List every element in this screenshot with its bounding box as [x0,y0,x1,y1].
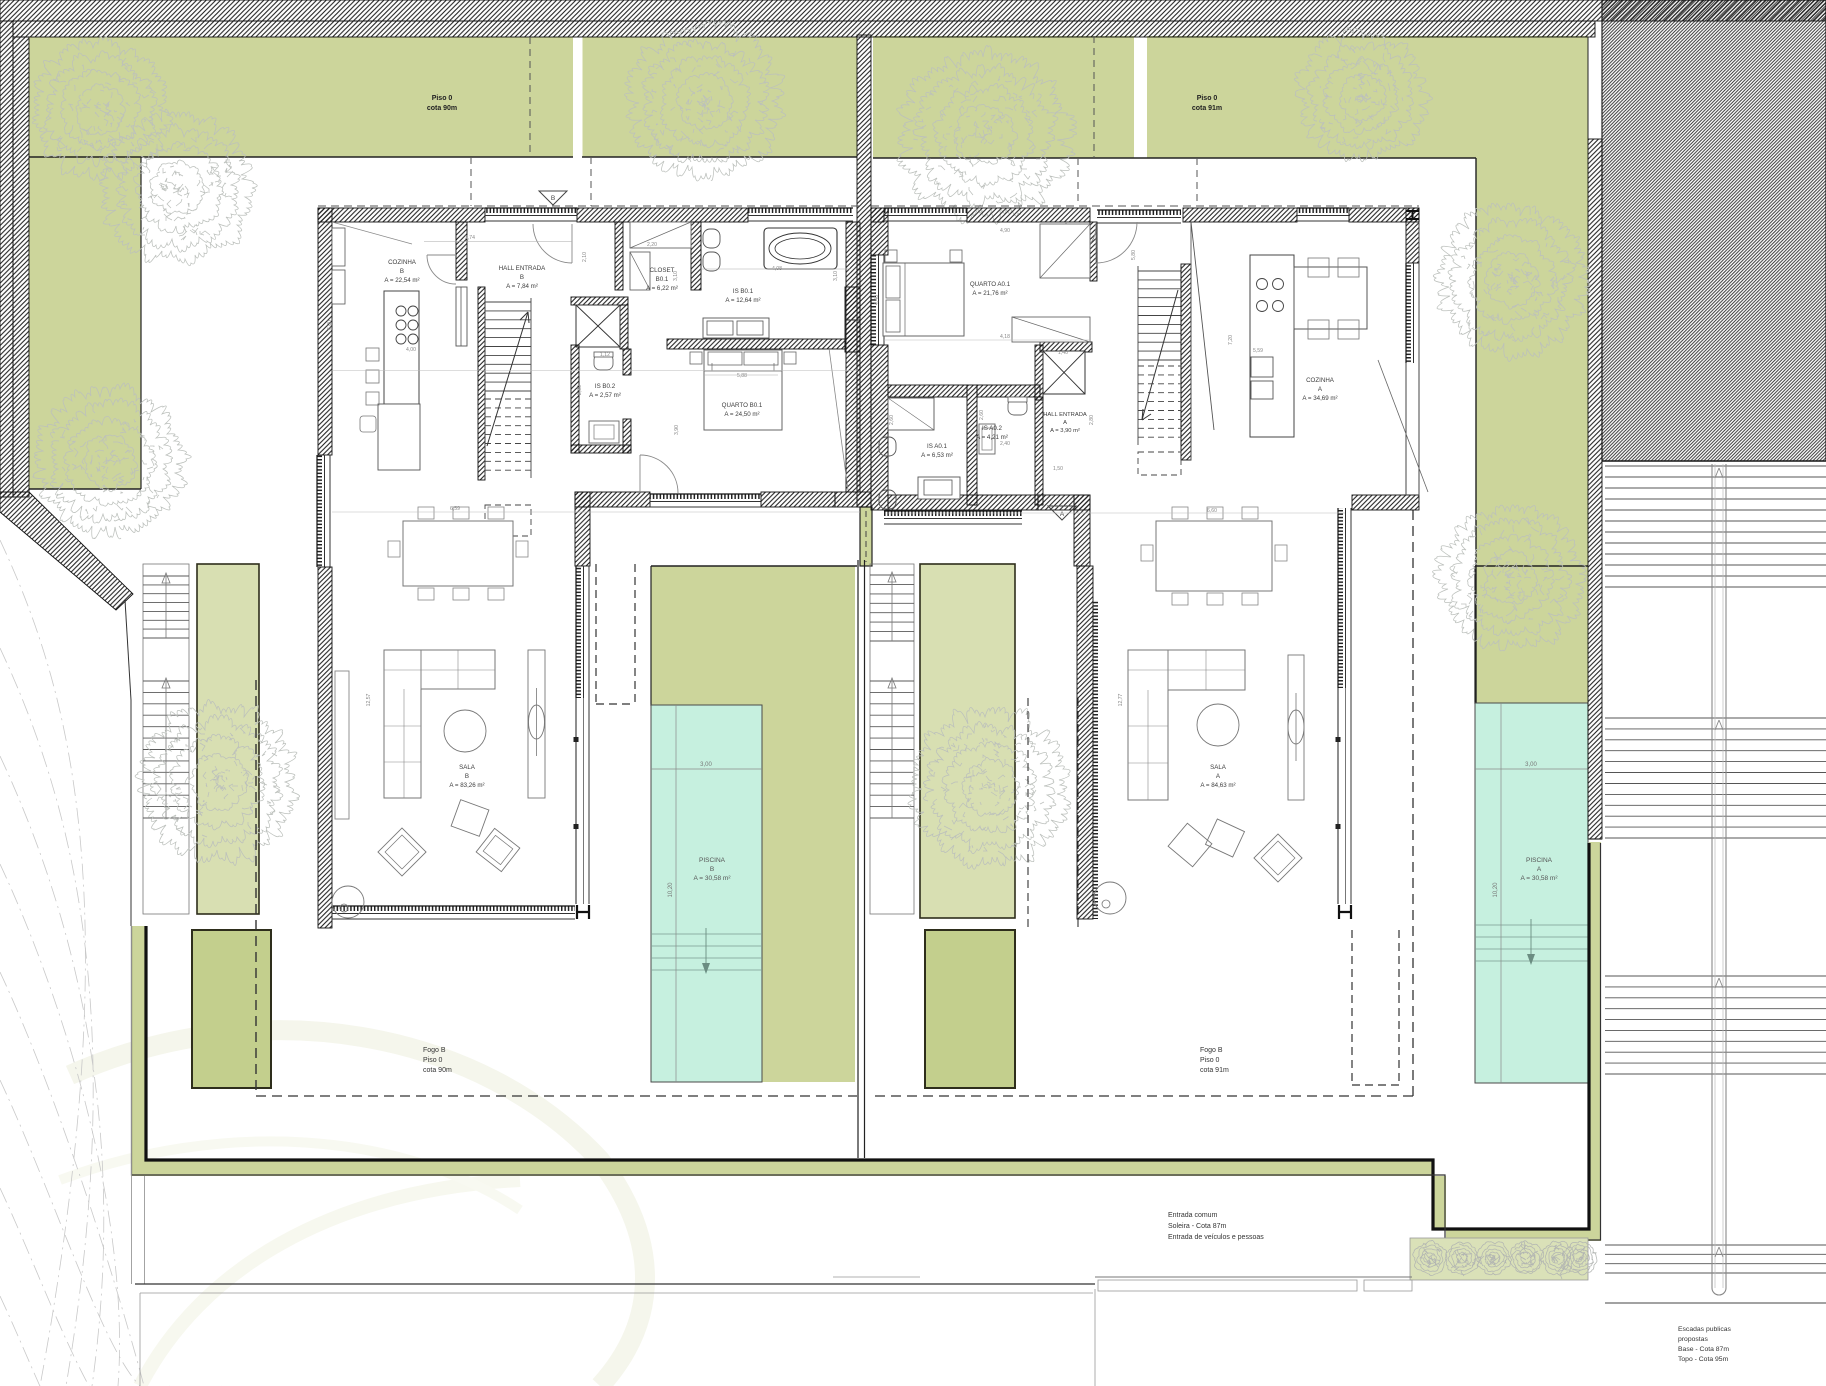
svg-text:3,00: 3,00 [700,762,712,768]
svg-text:A = 22,54 m²: A = 22,54 m² [384,277,419,284]
svg-text:Piso 0: Piso 0 [432,95,453,102]
svg-text:B: B [400,268,404,275]
svg-text:COZINHA: COZINHA [388,259,417,266]
svg-text:IS B0.1: IS B0.1 [733,288,754,295]
svg-text:SALA: SALA [1210,764,1227,771]
svg-text:Base - Cota 87m: Base - Cota 87m [1678,1346,1729,1353]
svg-text:CLOSET: CLOSET [650,267,675,274]
svg-text:cota 91m: cota 91m [1200,1067,1229,1074]
svg-text:Soleira - Cota 87m: Soleira - Cota 87m [1168,1223,1227,1230]
svg-text:2,20: 2,20 [647,242,657,248]
svg-text:A = 84,63 m²: A = 84,63 m² [1200,782,1235,789]
svg-text:Escadas publicas: Escadas publicas [1678,1326,1731,1333]
svg-text:2,60: 2,60 [979,410,985,420]
svg-text:3,10: 3,10 [673,271,679,281]
svg-text:A = 4,21 m²: A = 4,21 m² [976,434,1008,441]
svg-text:A = 30,58 m²: A = 30,58 m² [693,875,731,882]
svg-text:4,40: 4,40 [874,295,880,305]
svg-text:A = 83,26 m²: A = 83,26 m² [449,782,484,789]
svg-text:5,80: 5,80 [1131,250,1137,260]
svg-text:1,12: 1,12 [600,352,610,358]
svg-text:10,20: 10,20 [1493,882,1499,898]
svg-text:5,88: 5,88 [737,373,747,379]
svg-text:B: B [520,274,524,281]
svg-text:5,59: 5,59 [1253,348,1263,354]
svg-text:Piso 0: Piso 0 [1200,1057,1220,1064]
svg-text:12,77: 12,77 [1118,693,1124,706]
svg-text:A = 34,69 m²: A = 34,69 m² [1302,395,1337,402]
svg-text:Fogo B: Fogo B [423,1047,446,1054]
svg-text:2,10: 2,10 [582,252,588,262]
svg-text:A = 21,76 m²: A = 21,76 m² [972,290,1007,297]
svg-text:Fogo B: Fogo B [1200,1047,1223,1054]
svg-text:3,90: 3,90 [674,425,680,435]
svg-text:7,20: 7,20 [1228,335,1234,345]
svg-text:IS A0.2: IS A0.2 [982,425,1003,432]
svg-text:HALL ENTRADA: HALL ENTRADA [499,265,546,272]
svg-text:2,30: 2,30 [577,385,583,395]
svg-text:cota 90m: cota 90m [427,105,457,112]
svg-text:B0.1: B0.1 [656,276,669,283]
svg-text:A = 7,84 m²: A = 7,84 m² [506,283,538,290]
svg-text:A = 6,22 m²: A = 6,22 m² [646,285,678,292]
svg-text:cota 90m: cota 90m [423,1067,452,1074]
svg-text:B: B [551,195,555,202]
svg-text:QUARTO B0.1: QUARTO B0.1 [722,402,763,409]
svg-text:A: A [1537,866,1542,873]
svg-text:Piso 0: Piso 0 [423,1057,443,1064]
svg-text:A: A [1063,420,1067,426]
svg-text:A = 12,64 m²: A = 12,64 m² [725,297,760,304]
svg-text:SALA: SALA [459,764,476,771]
svg-text:IS B0.2: IS B0.2 [595,383,616,390]
svg-text:6,00: 6,00 [327,320,333,330]
svg-text:propostas: propostas [1678,1336,1708,1343]
svg-text:Piso 0: Piso 0 [1197,95,1218,102]
svg-text:1,40: 1,40 [1058,350,1068,356]
svg-text:1,50: 1,50 [1053,466,1063,472]
svg-text:A = 30,58 m²: A = 30,58 m² [1520,875,1558,882]
svg-text:3,00: 3,00 [1525,762,1537,768]
svg-text:B: B [465,773,469,780]
svg-text:10,20: 10,20 [668,882,674,898]
svg-text:A = 6,53 m²: A = 6,53 m² [921,452,953,459]
svg-text:IS A0.1: IS A0.1 [927,443,948,450]
svg-text:Entrada de veículos e pessoas: Entrada de veículos e pessoas [1168,1234,1264,1241]
svg-text:A: A [1060,511,1065,518]
svg-text:COZINHA: COZINHA [1306,377,1335,384]
svg-text:3,10: 3,10 [833,271,839,281]
svg-text:cota 91m: cota 91m [1192,105,1222,112]
svg-text:2,40: 2,40 [1000,441,1010,447]
svg-text:PISCINA: PISCINA [699,857,726,864]
svg-text:4,18: 4,18 [1000,334,1010,340]
svg-text:HALL ENTRADA: HALL ENTRADA [1043,412,1087,418]
svg-text:A = 3,90 m²: A = 3,90 m² [1050,428,1080,434]
svg-text:A = 2,57 m²: A = 2,57 m² [589,392,621,399]
svg-text:A = 24,50 m²: A = 24,50 m² [724,411,759,418]
svg-text:6,59: 6,59 [450,506,460,512]
svg-text:2,60: 2,60 [889,415,895,425]
svg-text:Entrada comum: Entrada comum [1168,1212,1218,1219]
svg-text:3,74: 3,74 [465,235,475,241]
svg-text:QUARTO A0.1: QUARTO A0.1 [970,281,1011,288]
svg-text:4,90: 4,90 [1000,228,1010,234]
svg-text:12,57: 12,57 [366,693,372,706]
svg-text:B: B [710,866,714,873]
svg-text:2,80: 2,80 [1089,415,1095,425]
svg-text:4,00: 4,00 [406,347,416,353]
svg-text:Topo - Cota 95m: Topo - Cota 95m [1678,1356,1729,1363]
svg-text:PISCINA: PISCINA [1526,857,1553,864]
